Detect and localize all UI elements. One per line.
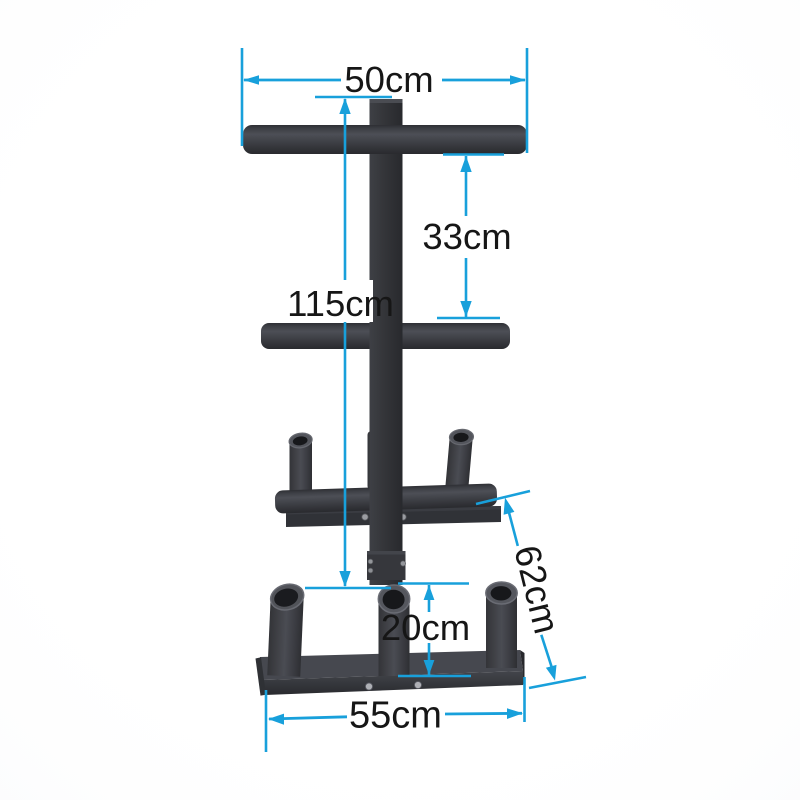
svg-text:20cm: 20cm [381, 607, 470, 648]
svg-text:33cm: 33cm [422, 216, 511, 257]
svg-text:55cm: 55cm [349, 695, 442, 737]
svg-text:115cm: 115cm [287, 283, 394, 324]
svg-text:50cm: 50cm [344, 59, 433, 100]
